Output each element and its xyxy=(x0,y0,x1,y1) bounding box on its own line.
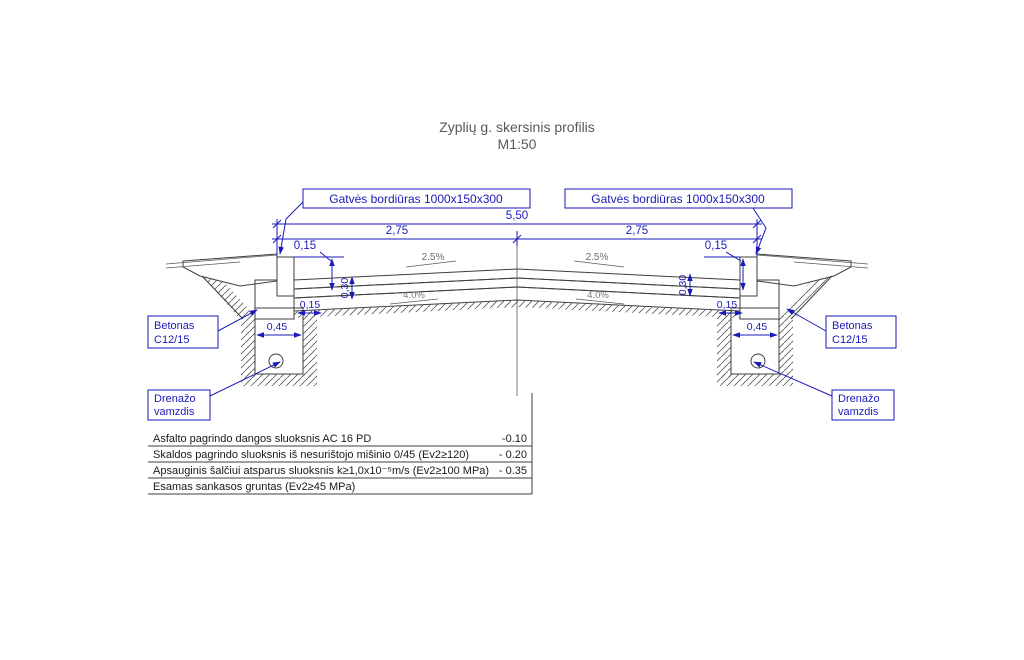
svg-text:4.0%: 4.0% xyxy=(587,290,609,301)
callout-drain-right: Drenažo vamzdis xyxy=(754,362,894,420)
right-verge xyxy=(757,254,868,319)
svg-text:0,15: 0,15 xyxy=(705,240,727,252)
svg-text:0,45: 0,45 xyxy=(267,321,288,333)
drawing-scale: M1:50 xyxy=(498,136,537,152)
svg-text:0,30: 0,30 xyxy=(339,278,351,299)
left-curb-stone xyxy=(277,257,294,296)
dimension-structure-depth-right: 0,30 xyxy=(677,274,690,296)
svg-text:Betonas: Betonas xyxy=(154,320,195,332)
right-embankment-hatch xyxy=(778,276,831,317)
svg-text:4.0%: 4.0% xyxy=(403,290,425,301)
svg-text:vamzdis: vamzdis xyxy=(154,406,195,418)
svg-text:vamzdis: vamzdis xyxy=(838,406,879,418)
dimension-curb-reveal-left: 0,15 xyxy=(294,240,344,290)
drawing-title: Zyplių g. skersinis profilis xyxy=(439,119,595,135)
svg-text:2,75: 2,75 xyxy=(626,225,648,237)
dimension-foundation-width-right: 0,45 xyxy=(733,321,777,335)
svg-text:2,75: 2,75 xyxy=(386,225,408,237)
svg-text:0,30: 0,30 xyxy=(677,275,689,296)
svg-text:Drenažo: Drenažo xyxy=(154,393,196,405)
cross-slope-left: 2.5% xyxy=(406,252,456,267)
layer-row-label: Esamas sankasos gruntas (Ev2≥45 MPa) xyxy=(153,481,355,493)
layer-row-depth: -0.10 xyxy=(502,433,527,445)
left-concrete-haunch xyxy=(255,280,294,319)
svg-text:0,15: 0,15 xyxy=(294,240,316,252)
dimension-foundation-width-left: 0,45 xyxy=(257,321,301,335)
dimension-foundation-offset-left: 0,15 xyxy=(298,299,321,313)
layer-row-label: Skaldos pagrindo sluoksnis iš nesurištoj… xyxy=(153,449,469,461)
svg-text:Gatvės bordiūras 1000x150x300: Gatvės bordiūras 1000x150x300 xyxy=(329,192,503,206)
svg-text:C12/15: C12/15 xyxy=(154,334,189,346)
svg-text:Drenažo: Drenažo xyxy=(838,393,880,405)
svg-text:5,50: 5,50 xyxy=(506,210,528,222)
svg-text:0,15: 0,15 xyxy=(717,299,738,311)
cross-section-drawing: Zyplių g. skersinis profilis M1:50 xyxy=(0,0,1024,660)
left-verge xyxy=(166,254,277,319)
svg-text:0,15: 0,15 xyxy=(300,299,321,311)
svg-text:2.5%: 2.5% xyxy=(586,252,609,263)
svg-text:C12/15: C12/15 xyxy=(832,334,867,346)
right-concrete-haunch xyxy=(740,280,779,319)
left-curb-foundation xyxy=(241,308,317,386)
dimension-structure-depth-left: 0,30 xyxy=(339,277,352,299)
drainage-slope-left: 4.0% xyxy=(390,290,438,304)
layer-row-label: Asfalto pagrindo dangos sluoksnis AC 16 … xyxy=(153,433,371,445)
drawing-sheet: Zyplių g. skersinis profilis M1:50 xyxy=(0,0,1024,660)
svg-text:2.5%: 2.5% xyxy=(422,252,445,263)
layer-row-depth: - 0.20 xyxy=(499,449,527,461)
left-embankment-hatch xyxy=(203,276,256,317)
cross-slope-right: 2.5% xyxy=(574,252,624,267)
layer-row-label: Apsauginis šalčiui atsparus sluoksnis k≥… xyxy=(153,465,489,477)
layer-row-depth: - 0.35 xyxy=(499,465,527,477)
dimension-curb-reveal-right: 0,15 xyxy=(704,240,743,290)
callout-curb-right: Gatvės bordiūras 1000x150x300 xyxy=(565,189,792,254)
dimension-total-width: 5,50 xyxy=(272,210,762,228)
callout-curb-left: Gatvės bordiūras 1000x150x300 xyxy=(280,189,530,254)
callout-drain-left: Drenažo vamzdis xyxy=(148,362,280,420)
svg-text:0,45: 0,45 xyxy=(747,321,768,333)
svg-text:Betonas: Betonas xyxy=(832,320,873,332)
callout-concrete-right: Betonas C12/15 xyxy=(787,309,896,348)
svg-text:Gatvės bordiūras 1000x150x300: Gatvės bordiūras 1000x150x300 xyxy=(591,192,765,206)
